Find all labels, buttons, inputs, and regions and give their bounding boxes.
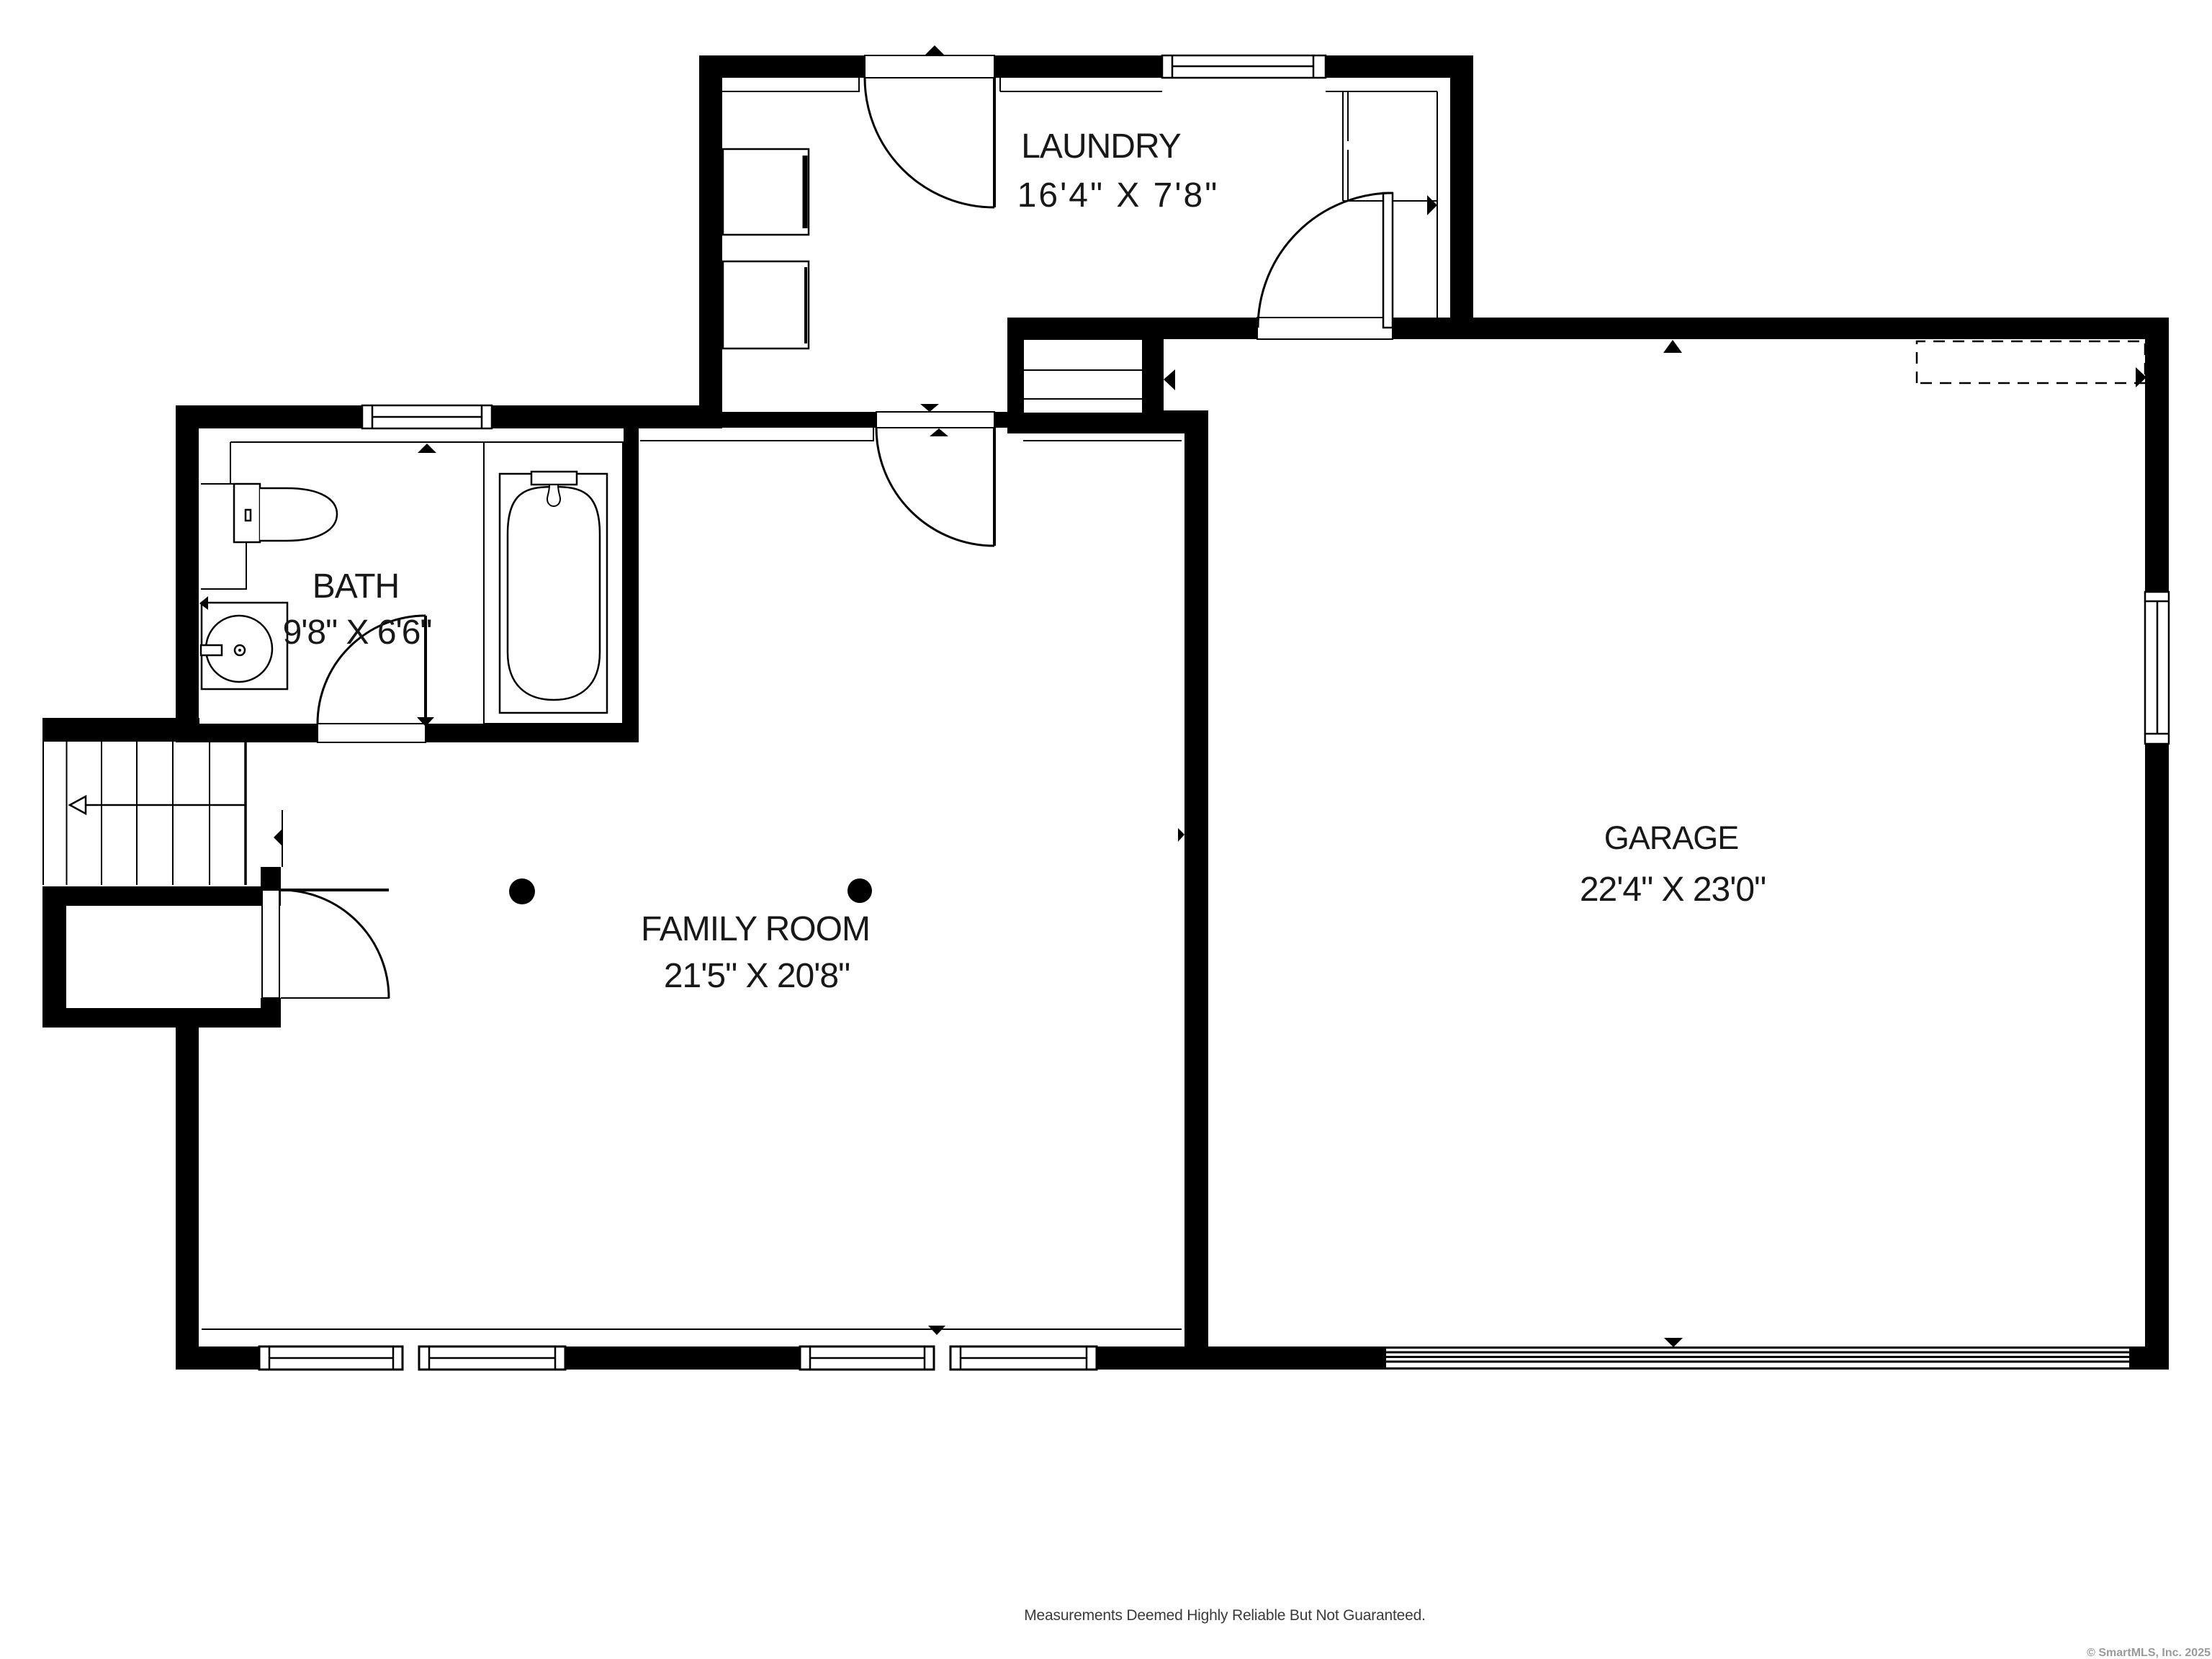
svg-text:FAMILY ROOM: FAMILY ROOM [641,910,870,948]
svg-text:GARAGE: GARAGE [1604,819,1739,856]
svg-text:LAUNDRY: LAUNDRY [1021,127,1181,166]
svg-text:9'8" X 6'6": 9'8" X 6'6" [283,613,432,652]
svg-text:16'4" X 7'8": 16'4" X 7'8" [1017,176,1220,215]
svg-text:BATH: BATH [313,567,399,606]
svg-text:© SmartMLS, Inc. 2025: © SmartMLS, Inc. 2025 [2087,1647,2211,1659]
svg-text:Measurements Deemed Highly Rel: Measurements Deemed Highly Reliable But … [1024,1607,1425,1624]
svg-text:22'4" X 23'0": 22'4" X 23'0" [1580,871,1766,909]
svg-text:21'5" X 20'8": 21'5" X 20'8" [664,957,850,995]
